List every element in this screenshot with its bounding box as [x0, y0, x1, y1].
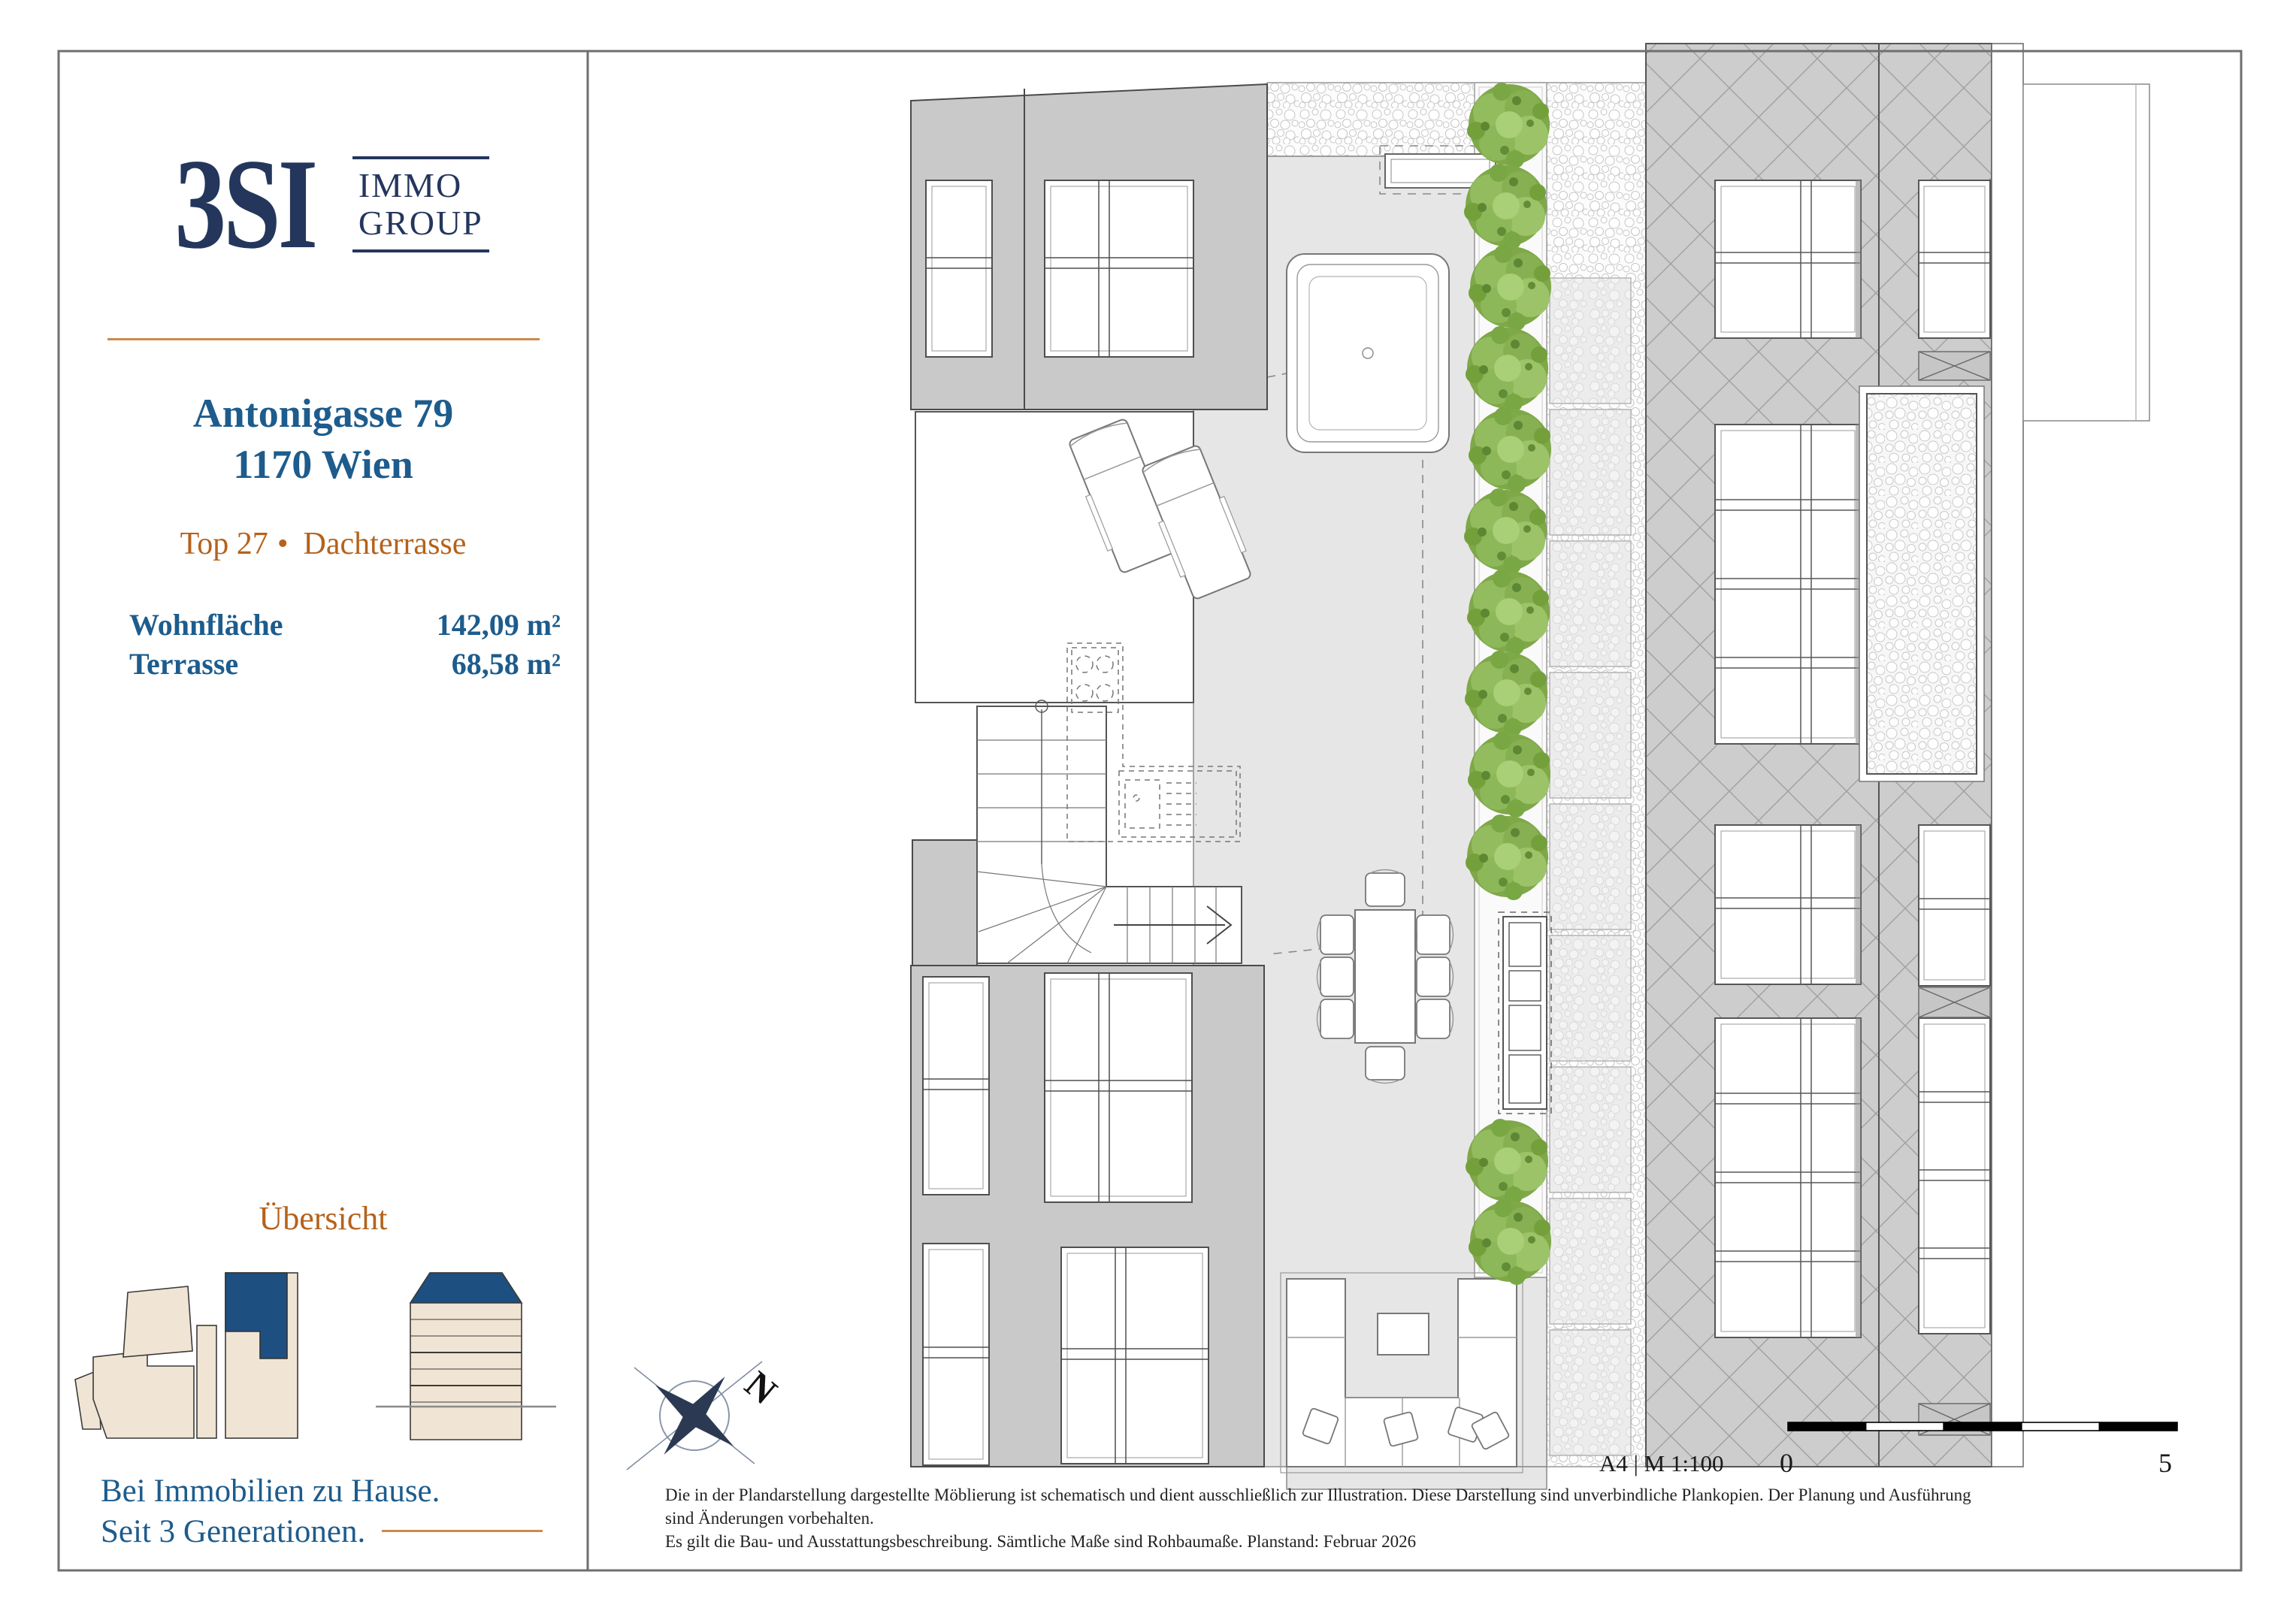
coffee-table — [1378, 1313, 1429, 1355]
unit-type: Dachterrasse — [304, 527, 467, 561]
sidebar-divider — [107, 338, 540, 340]
overview-title: Übersicht — [59, 1199, 588, 1238]
bullet-separator: • — [277, 527, 289, 561]
minimap-elevation-highlight — [410, 1273, 522, 1303]
compass-icon: N — [625, 1346, 785, 1485]
disclaimer-line-2: sind Änderungen vorbehalten. — [665, 1507, 1971, 1530]
metric-row-wohnflaeche: Wohnfläche 142,09 m² — [129, 606, 561, 645]
floor-plan — [911, 44, 2149, 1489]
tagline-underline — [382, 1530, 543, 1532]
disclaimer-line-1: Die in der Plandarstellung dargestellte … — [665, 1483, 1971, 1507]
brand-tagline: Bei Immobilien zu Hause. Seit 3 Generati… — [101, 1471, 440, 1552]
dining-table — [1355, 910, 1415, 1043]
roof-hatch-east — [1646, 44, 2149, 1467]
metric-value: 142,09 m² — [437, 606, 561, 645]
sheet-scale-label: A4 | M 1:100 — [1599, 1450, 1724, 1477]
hot-tub — [1287, 254, 1449, 452]
gravel-planter — [1859, 386, 1984, 781]
logo-wordmark: IMMO GROUP — [352, 156, 489, 252]
metric-label: Wohnfläche — [129, 606, 283, 645]
minimap-elevation — [376, 1273, 556, 1440]
scale-end-label: 5 — [2158, 1447, 2172, 1479]
logo-brand-text: 3SI — [175, 140, 316, 269]
tagline-line-2: Seit 3 Generationen. — [101, 1512, 440, 1552]
plan-disclaimer: Die in der Plandarstellung dargestellte … — [665, 1483, 1971, 1553]
tagline-line-1: Bei Immobilien zu Hause. — [101, 1471, 440, 1512]
address-line-1: Antonigasse 79 — [59, 388, 588, 439]
metric-label: Terrasse — [129, 645, 238, 684]
overview-minimap — [75, 1273, 556, 1440]
metric-value: 68,58 m² — [452, 645, 561, 684]
unit-line: Top 27•Dachterrasse — [59, 526, 588, 562]
area-metrics: Wohnfläche 142,09 m² Terrasse 68,58 m² — [129, 606, 561, 684]
compass-north-label: N — [737, 1363, 785, 1413]
brand-logo: 3SI IMMO GROUP — [59, 140, 588, 269]
scale-start-label: 0 — [1780, 1447, 1793, 1479]
address-line-2: 1170 Wien — [59, 439, 588, 490]
plan-page: N 3SI IMMO GROUP Antonigasse 79 1170 Wie… — [0, 0, 2296, 1623]
property-address: Antonigasse 79 1170 Wien — [59, 388, 588, 490]
logo-word-2: GROUP — [358, 204, 483, 242]
rooftop-panel — [2023, 84, 2149, 421]
disclaimer-line-3: Es gilt die Bau- und Ausstattungsbeschre… — [665, 1530, 1971, 1553]
scale-bar — [1788, 1422, 2177, 1431]
stepping-pavers — [1550, 278, 1631, 1455]
unit-number: Top 27 — [180, 527, 268, 561]
trough-planter — [1499, 912, 1551, 1114]
logo-word-1: IMMO — [358, 167, 483, 204]
metric-row-terrasse: Terrasse 68,58 m² — [129, 645, 561, 684]
